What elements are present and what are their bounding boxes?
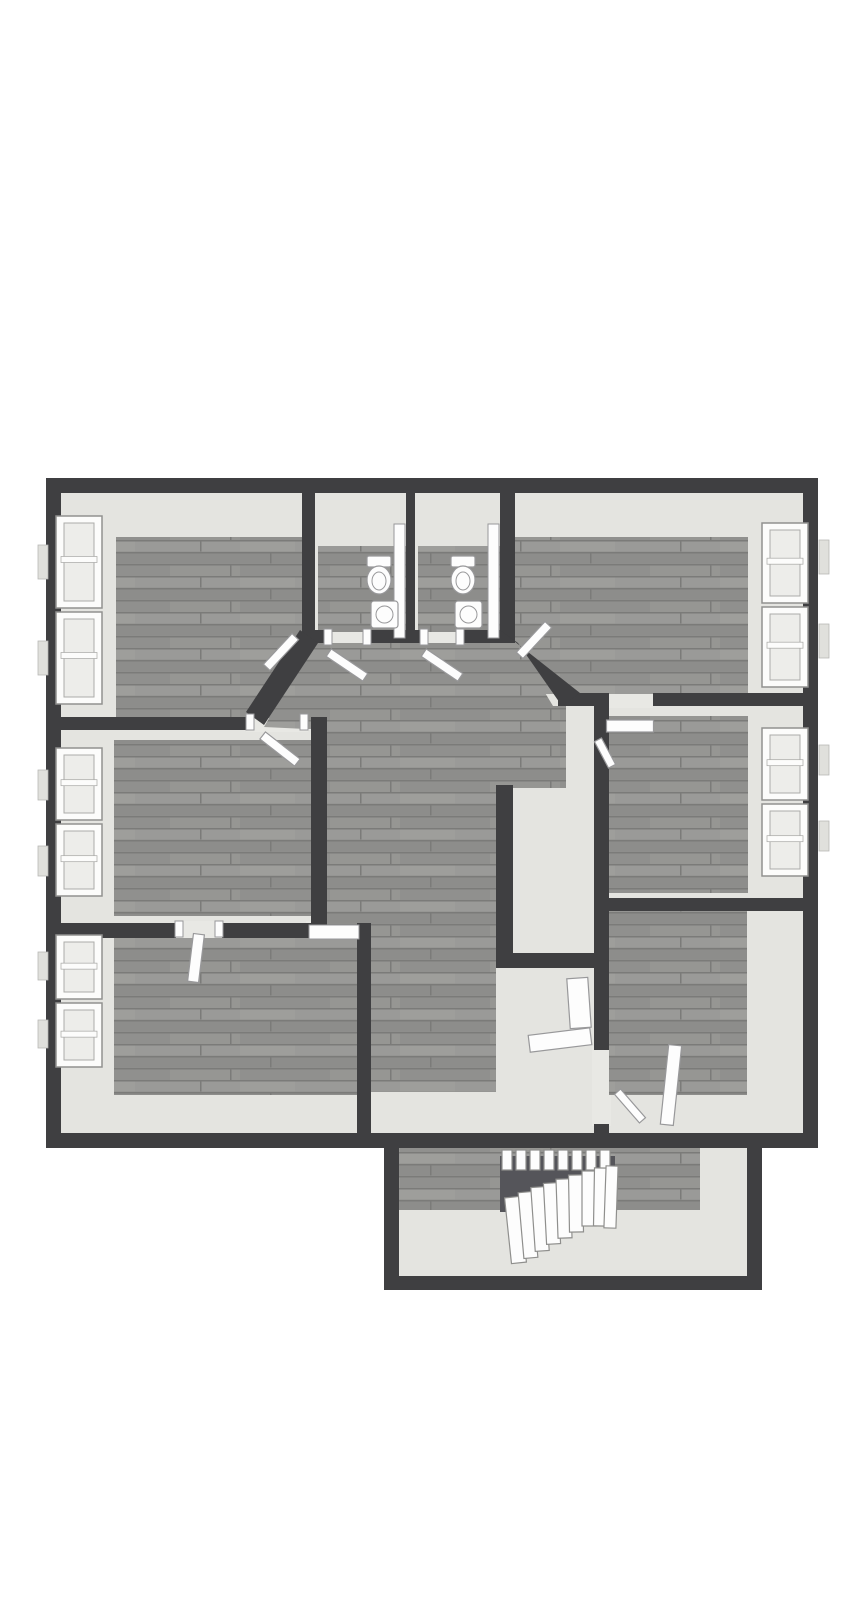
window-mullion [767, 760, 803, 766]
room-bottom-left-floor [114, 938, 357, 1095]
window-mullion [767, 642, 803, 648]
window-sill-tab [38, 1020, 48, 1048]
window-mid-left-upper [56, 748, 102, 820]
window-mullion [61, 652, 97, 658]
window-top-left-lower [56, 612, 102, 704]
toilet-tank [451, 556, 475, 567]
window-sill-tab [819, 745, 829, 775]
window-sill-tab [38, 545, 48, 579]
window-mullion [767, 836, 803, 842]
window-bottom-left-lower [56, 1003, 102, 1067]
wall-bath-topright [500, 492, 515, 632]
door-jamb [363, 629, 371, 645]
window-mid-left-lower [56, 824, 102, 896]
stair-tread-upper [586, 1150, 596, 1170]
wall-hall-nook-vertical [496, 785, 513, 953]
stair-tread-upper [558, 1150, 568, 1170]
room-mid-right-floor [609, 716, 748, 893]
stair-tread-upper [572, 1150, 582, 1170]
door-mid-right-room [607, 720, 654, 732]
page [0, 0, 867, 1600]
stair-tread-winder [569, 1175, 584, 1232]
window-mullion [61, 780, 97, 786]
window-mid-right-lower [762, 804, 808, 876]
door-jamb [175, 921, 183, 937]
stair-tread-upper [516, 1150, 526, 1170]
sink-counter [455, 601, 482, 628]
window-mullion [61, 556, 97, 562]
wall-midleft-bottom-b [222, 923, 311, 938]
outer-wall-top [46, 478, 818, 493]
wall-topleft-bath [302, 492, 315, 632]
toilet [367, 556, 391, 594]
window-mullion [61, 1031, 97, 1037]
toilet-tank [367, 556, 391, 567]
bathroom-partition [488, 524, 499, 638]
wall-bottomleft-right [357, 923, 371, 1148]
stairwell-wall-bottom [384, 1276, 762, 1290]
window-mullion [61, 856, 97, 862]
door-jamb [246, 714, 254, 730]
window-sill-tab [38, 846, 48, 876]
door-leaf-nook-standing [567, 977, 591, 1028]
stair-tread-upper [544, 1150, 554, 1170]
window-sill-tab [38, 770, 48, 800]
outer-wall-bottom [46, 1133, 818, 1148]
window-sill-tab [819, 624, 829, 658]
window-top-right-upper [762, 523, 808, 603]
window-top-right-lower [762, 607, 808, 687]
window-mullion [61, 963, 97, 969]
door-jamb [420, 629, 428, 645]
wall-midright-left-b [594, 1124, 609, 1148]
window-sill-tab [38, 641, 48, 675]
wall-between-baths [406, 492, 415, 632]
window-sill-tab [38, 952, 48, 980]
window-mullion [767, 558, 803, 564]
door-jamb [215, 921, 223, 937]
window-sill-tab [819, 821, 829, 851]
doorway-threshold [592, 1046, 611, 1126]
wall-midleft-right [311, 717, 327, 927]
floor-plan-image [0, 0, 867, 1600]
door-jamb [324, 629, 332, 645]
door-jamb [309, 925, 359, 939]
sink [455, 601, 482, 628]
wall-topleft-bottom [46, 717, 246, 730]
stair-tread-upper [530, 1150, 540, 1170]
wall-hall-nook-horizontal [496, 953, 609, 968]
window-mid-right-upper [762, 728, 808, 800]
stair-tread-winder [604, 1166, 618, 1228]
sink-counter [371, 601, 398, 628]
door-jamb [300, 714, 308, 730]
wall-topright-bottom-b [653, 693, 818, 706]
stairwell-wall-right [747, 1148, 762, 1290]
toilet [451, 556, 475, 594]
wall-midright-bottom [594, 898, 818, 911]
stair-tread-upper [502, 1150, 512, 1170]
window-sill-tab [819, 540, 829, 574]
room-mid-left-floor [114, 740, 313, 916]
sink [371, 601, 398, 628]
door-jamb [456, 629, 464, 645]
window-bottom-left-upper [56, 935, 102, 999]
window-top-left-upper [56, 516, 102, 608]
stairwell-wall-left [384, 1148, 399, 1290]
